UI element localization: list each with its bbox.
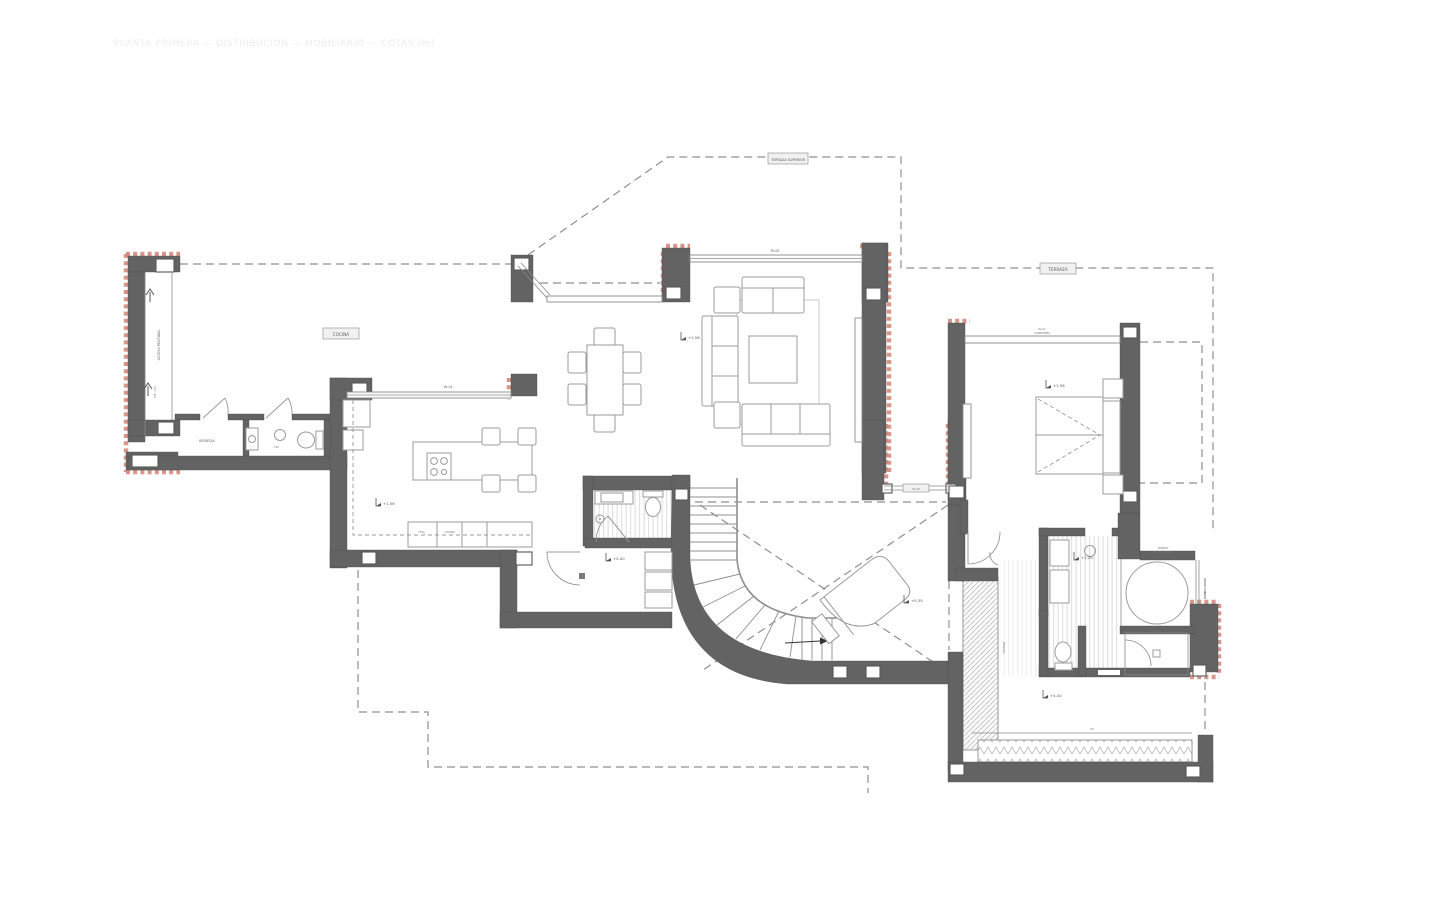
planter-strip [978, 740, 1192, 762]
svg-text:+1.58: +1.58 [688, 335, 700, 340]
closet-shelf [645, 552, 672, 570]
dining-area [568, 328, 641, 432]
sofa-bottom [742, 404, 830, 446]
armchair [714, 402, 740, 428]
roof-tag: TERRAZA SUPERIOR [770, 158, 806, 162]
carpentry-tag: Pa-07 [1038, 327, 1046, 331]
fixture-label: BAÑERA [1158, 545, 1169, 550]
carpentry-tag: Pa-06 [771, 249, 780, 253]
roof-tag: TERRAZA [1047, 267, 1068, 272]
toilet [646, 498, 661, 517]
nightstand [1103, 379, 1123, 398]
floor-plan-drawing: COCINA TERRAZA SUPERIOR TERRAZA Pa-08 BO… [0, 0, 1440, 900]
chair [594, 328, 615, 345]
closet-shelf [645, 592, 672, 608]
carpentry-tag: CORREDERA [1034, 331, 1050, 335]
svg-text:+0.35: +0.35 [911, 598, 923, 603]
svg-text:+1.56: +1.56 [383, 501, 395, 506]
railing-label: VIDRIO [1203, 585, 1207, 594]
kitchen [343, 400, 536, 547]
bath-corridor-floor [1000, 560, 1039, 676]
ramp-label: PTE. 10% [153, 385, 157, 398]
kitchen-cabinet [343, 400, 370, 427]
bedroom-west-window [963, 404, 971, 478]
chair [594, 415, 615, 432]
level-marker: +4.40 [1043, 690, 1062, 698]
chair [568, 352, 586, 373]
toilet-tank [1055, 663, 1072, 670]
svg-text:+2.40: +2.40 [613, 556, 625, 561]
level-marker: +1.58 [681, 332, 700, 340]
living-room [702, 277, 830, 446]
ramp-arrow-icon [146, 289, 154, 302]
chair [568, 384, 586, 405]
dining-table [587, 345, 623, 415]
closet-shelf [645, 572, 672, 590]
vanity [1050, 570, 1069, 603]
toilet [298, 432, 315, 448]
coffee-table [749, 336, 797, 383]
svg-text:+1.20: +1.20 [1081, 555, 1093, 560]
basin [275, 430, 286, 441]
slope-label: 3% [1090, 727, 1095, 731]
living-east-window [855, 318, 862, 442]
cabinet-label: FRIG. [419, 530, 426, 534]
level-marker: +1.56 [376, 498, 395, 506]
chair [623, 352, 641, 373]
svg-text:+4.40: +4.40 [1050, 693, 1062, 698]
door-leaf [266, 398, 288, 418]
carpentry-tag: Va-04 [443, 385, 452, 389]
bedroom [1036, 379, 1123, 494]
cabinet-label: HORNO [445, 530, 455, 534]
room-tag: COCINA [333, 332, 350, 337]
stool [482, 475, 500, 492]
corridor-label: ACCESO PEATONAL [157, 329, 161, 360]
dim-label: 1.90 [273, 445, 279, 449]
vanity [1050, 540, 1069, 566]
sofa-left [702, 316, 738, 406]
bathtub [1126, 562, 1188, 624]
carpentry-tag: Pa-08 [912, 487, 920, 491]
fixture-label: DUCHA [1151, 629, 1161, 633]
shower-drain [1153, 650, 1160, 657]
door-leaf [203, 398, 225, 418]
dining-window [547, 296, 662, 302]
toilet [1055, 642, 1071, 662]
floor-plan-sheet: PLANTA PRIMERA — DISTRIBUCIÓN — MOBILIAR… [0, 0, 1440, 900]
stool [482, 428, 500, 445]
kitchen-counter [408, 522, 532, 547]
washer [246, 428, 258, 450]
chair [623, 384, 641, 405]
room-label: BODEGA [199, 439, 215, 443]
walls [126, 243, 1218, 782]
svg-text:+1.56: +1.56 [1053, 383, 1065, 388]
bedroom-north-window [965, 336, 1120, 343]
level-marker: +2.40 [606, 553, 625, 561]
nightstand [1103, 475, 1123, 494]
pergola-walkway [963, 577, 998, 750]
stool [518, 428, 536, 445]
toilet-tank [643, 491, 663, 497]
armchair [714, 287, 740, 313]
level-marker: +1.56 [1046, 380, 1065, 388]
toilet-tank [316, 431, 323, 449]
headboard [1103, 401, 1120, 473]
kitchen-cabinet [343, 430, 363, 450]
stool [518, 475, 536, 492]
